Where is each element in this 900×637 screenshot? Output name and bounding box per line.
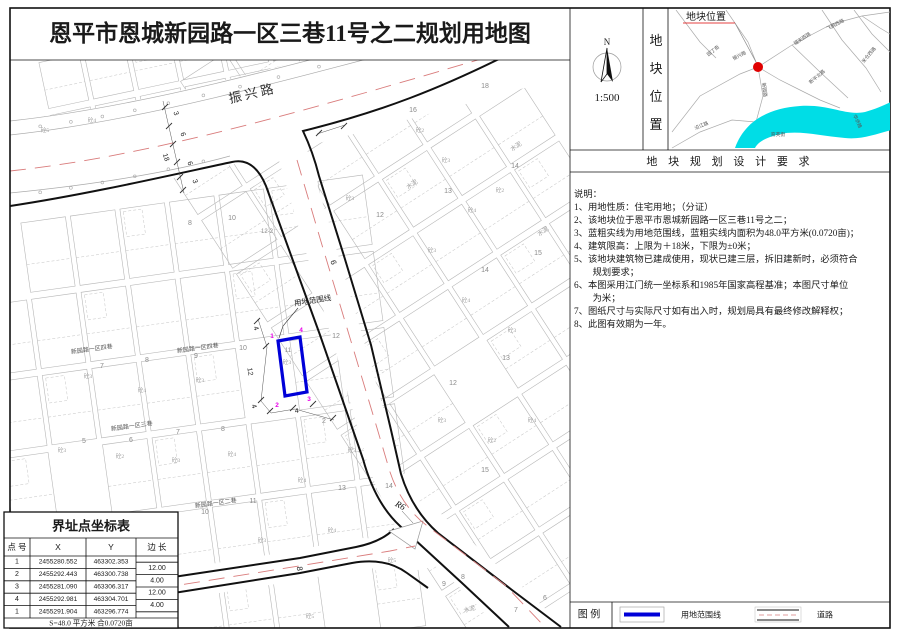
legend-road-sample-icon [755, 607, 801, 622]
map-label: 砼4 [228, 450, 237, 458]
map-label: 10 [201, 509, 209, 516]
coord-x: 2455281.090 [39, 584, 78, 591]
edge-length: 12.00 [148, 590, 166, 597]
note-line: 为米； [574, 292, 621, 304]
map-label: 15 [481, 467, 489, 474]
map-label: 砼2 [496, 186, 505, 194]
table-title: 界址点坐标表 [52, 519, 131, 534]
map-label: 砼3 [508, 326, 517, 334]
plot-location-vertical-char: 地 [649, 33, 662, 48]
map-label: 砼3 [84, 372, 93, 380]
map-label: 11 [285, 348, 292, 354]
map-label: 2 [322, 418, 326, 425]
map-label: 砼2 [416, 126, 425, 134]
map-label: 18 [481, 83, 489, 90]
point-id: 4 [15, 596, 19, 603]
map-label: 8 [188, 220, 192, 227]
map-label: 8 [145, 357, 149, 364]
map-label: 12 [332, 333, 340, 340]
map-label: 砼5 [388, 556, 397, 564]
edge-length: 4.00 [150, 602, 164, 609]
point-id: 1 [15, 608, 19, 615]
map-label: 砼3 [258, 536, 267, 544]
map-label: 砼4 [328, 526, 337, 534]
map-label: 10 [228, 215, 236, 222]
map-label: 10 [239, 345, 247, 352]
map-label: 7 [176, 429, 180, 436]
map-label: 4 [299, 327, 303, 334]
map-label: 砼3 [196, 376, 205, 384]
map-label: 砼4 [528, 416, 537, 424]
map-label: 13 [502, 355, 510, 362]
note-line: 3、蓝粗实线为用地范围线，蓝粗实线内面积为48.0平方米(0.0720亩)； [574, 227, 859, 239]
coord-x: 2455291.904 [39, 608, 78, 615]
north-label: N [604, 37, 611, 47]
map-label: 9 [442, 581, 446, 588]
note-line: 规划要求； [574, 266, 639, 278]
map-label: 2 [275, 402, 279, 409]
coord-y: 463300.738 [94, 571, 129, 578]
map-label: 砼3 [172, 456, 181, 464]
map-label: 砼3 [283, 358, 292, 366]
map-label: 8 [461, 574, 465, 581]
map-label: 6 [129, 437, 133, 444]
legend-boundary-label: 用地范围线 [681, 610, 721, 620]
map-label: 砼2 [116, 452, 125, 460]
coordinate-table: 界址点坐标表 点 号 X Y 边 长 1 2455280.552 463302.… [4, 512, 178, 628]
coord-y: 463296.774 [94, 608, 129, 615]
map-label: 砼3 [346, 194, 355, 202]
point-id: 2 [15, 571, 19, 578]
point-id: 1 [15, 559, 19, 566]
map-label: 5 [82, 438, 86, 445]
map-label: 砼5 [41, 126, 50, 134]
map-label: 砼2 [488, 436, 497, 444]
coord-y: 463306.317 [94, 584, 129, 591]
note-line: 4、建筑限高：上限为＋18米，下限为±0米； [574, 240, 756, 252]
coord-x: 2455292.443 [39, 571, 78, 578]
note-line: 8、此图有效期为一年。 [574, 318, 672, 330]
plot-location-vertical-char: 位 [649, 89, 662, 104]
map-label: 砼5 [306, 612, 315, 620]
map-label: 16 [409, 107, 417, 114]
map-label: 14 [385, 483, 393, 490]
plan-sheet: 振 兴 路36186368R6用地范围线新园路一区四巷新园路一区四巷新园路一区三… [0, 0, 900, 637]
map-label: 砼3 [438, 416, 447, 424]
scale-label: 1:500 [594, 92, 620, 104]
map-label: 14 [511, 163, 519, 170]
map-label: 7 [514, 607, 518, 614]
map-label: 11 [249, 498, 256, 505]
map-label: 9 [194, 353, 198, 360]
map-label: 砼3 [428, 246, 437, 254]
plot-location-callout: 地块位置 [686, 10, 726, 23]
note-line: 7、图纸尺寸与实际尺寸如有出入时，规划局具有最终修改解释权； [574, 305, 848, 317]
plot-location-vertical-char: 置 [649, 117, 662, 132]
plot-location-vertical-char: 块 [649, 61, 662, 76]
map-label: 7 [100, 363, 104, 370]
requirements-header: 地 块 规 划 设 计 要 求 [646, 154, 813, 168]
col-header: Y [108, 542, 114, 552]
map-label: 砼3 [58, 446, 67, 454]
plot-location-dot [753, 62, 763, 72]
edge-length: 4.00 [150, 577, 164, 584]
col-header: 边 长 [147, 542, 167, 552]
map-label: 15 [534, 250, 542, 257]
map-label: 6 [543, 595, 547, 602]
map-label: 12-2 [261, 229, 274, 235]
map-label: 12 [376, 212, 384, 219]
coord-x: 2455280.552 [39, 559, 78, 566]
note-line: 5、该地块建筑物已建成使用，现状已建三层，拆旧建新时，必须符合 [574, 253, 858, 265]
map-label: 砼4 [298, 476, 307, 484]
note-line: 说明： [574, 188, 602, 200]
map-label: 1 [270, 333, 274, 340]
coord-y: 463302.353 [94, 559, 129, 566]
note-line: 2、该地块位于恩平市恩城新园路一区三巷11号之二； [574, 214, 792, 226]
map-label: 砼4 [88, 116, 97, 124]
map-label: 8 [221, 426, 225, 433]
note-line: 6、本图采用江门统一坐标系和1985年国家高程基准；本图尺寸单位 [574, 279, 848, 291]
map-label: 13 [444, 188, 452, 195]
map-label: 3 [307, 396, 311, 403]
map-label: 砼4 [468, 206, 477, 214]
point-id: 3 [15, 584, 19, 591]
col-header: 点 号 [7, 542, 26, 552]
map-label: 砼3 [348, 446, 357, 454]
coord-y: 463304.701 [94, 596, 129, 603]
legend-road-label: 道路 [817, 610, 833, 620]
map-label: 砼4 [462, 296, 471, 304]
page-title: 恩平市恩城新园路一区三巷11号之二规划用地图 [49, 20, 531, 46]
map-label: 12 [245, 367, 253, 376]
map-label: 13 [338, 485, 346, 492]
plan-drawing: 振 兴 路36186368R6用地范围线新园路一区四巷新园路一区四巷新园路一区三… [0, 0, 900, 637]
note-line: 1、用地性质：住宅用地；（分证） [574, 201, 713, 213]
map-label: 砼4 [138, 386, 147, 394]
legend-title: 图 例 [578, 608, 601, 621]
inset-road-label: 育英街 [771, 131, 786, 138]
coord-x: 2455292.981 [39, 596, 78, 603]
map-label: 12 [449, 380, 457, 387]
table-footer: S=48.0 平方米 合0.0720亩 [49, 618, 133, 628]
map-label: 砼3 [442, 156, 451, 164]
edge-length: 12.00 [148, 565, 166, 572]
col-header: X [55, 542, 61, 552]
map-label: 14 [481, 267, 489, 274]
